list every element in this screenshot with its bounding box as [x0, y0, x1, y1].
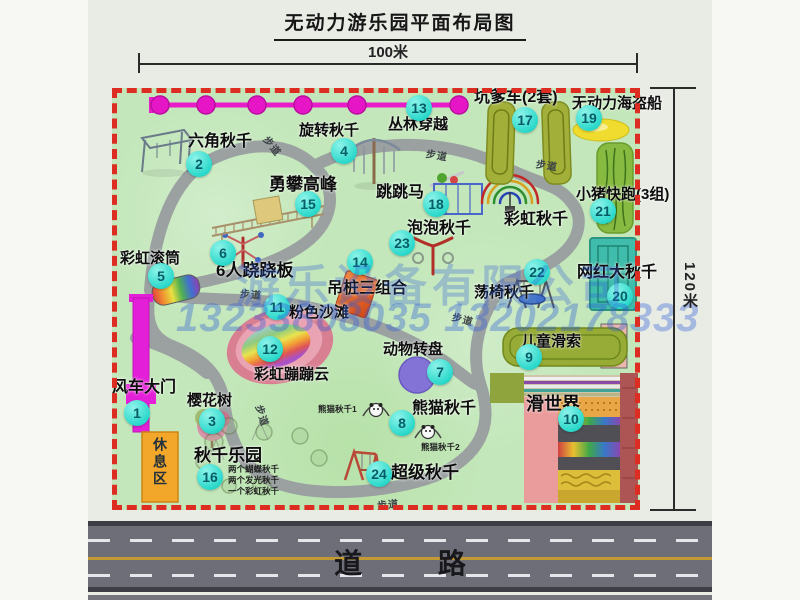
label-piggy-run: 小猪快跑(3组)	[576, 187, 669, 203]
label-rainbow-swing: 彩虹秋千	[504, 212, 568, 229]
label-rest-area: 休息区	[150, 437, 170, 488]
label-rotating-swing: 旋转秋千	[299, 123, 359, 139]
title-wrap: 无动力游乐园平面布局图	[0, 8, 800, 41]
badge-13: 13	[406, 95, 432, 121]
label-bubble-swing: 泡泡秋千	[407, 221, 471, 238]
road-base-edge	[88, 595, 712, 600]
label-bumper-car: 坑爹车(2套)	[474, 90, 558, 107]
label-hexagon-swing: 六角秋千	[188, 134, 252, 151]
hexagon-swing-icon	[142, 130, 192, 177]
slide-world-icon	[490, 373, 638, 503]
label-pink-beach: 粉色沙滩	[289, 305, 349, 321]
badge-19: 19	[576, 105, 602, 131]
swing-park-note-3: 一个彩虹秋千	[228, 486, 279, 497]
dimension-height-line	[673, 88, 675, 510]
page-title: 无动力游乐园平面布局图	[274, 8, 525, 41]
dimension-height-label: 120米	[679, 262, 700, 310]
label-jumping-horse: 跳跳马	[376, 185, 424, 202]
badge-1: 1	[124, 400, 150, 426]
label-panda-swing-2: 熊猫秋千2	[421, 442, 460, 453]
road-label: 道 路	[88, 542, 712, 582]
badge-5: 5	[148, 263, 174, 289]
bubble-swing-icon	[413, 238, 453, 274]
screenshot-stage: 无动力游乐园平面布局图 100米 120米	[0, 0, 800, 600]
dimension-width-line	[138, 63, 638, 65]
label-animal-turntable: 动物转盘	[383, 342, 443, 358]
road: 道 路	[88, 521, 712, 592]
badge-18: 18	[423, 191, 449, 217]
swing-park-note-2: 两个发光秋千	[228, 475, 279, 486]
footpath-label-4: 步道	[239, 285, 262, 302]
dimension-width-label: 100米	[138, 41, 638, 62]
label-rainbow-roller: 彩虹滚筒	[120, 251, 180, 267]
badge-6: 6	[210, 240, 236, 266]
badge-8: 8	[389, 410, 415, 436]
map-graphics	[112, 88, 640, 510]
label-rainbow-cloud: 彩虹蹦蹦云	[254, 367, 329, 383]
label-panda-swing-1: 熊猫秋千1	[318, 404, 357, 415]
badge-20: 20	[607, 283, 633, 309]
dimension-height-tick-bottom	[650, 509, 696, 511]
badge-10: 10	[558, 406, 584, 432]
rotating-swing-icon	[350, 138, 400, 190]
dimension-width-tick-right	[636, 53, 638, 73]
walking-paths	[136, 145, 579, 492]
badge-16: 16	[197, 464, 223, 490]
badge-7: 7	[427, 359, 453, 385]
badge-11: 11	[264, 294, 290, 320]
badge-17: 17	[512, 107, 538, 133]
label-hanging-piles: 吊桩三组合	[327, 281, 407, 298]
badge-23: 23	[389, 230, 415, 256]
swing-park-notes: 两个蝴蝶秋千 两个发光秋千 一个彩虹秋千	[228, 464, 279, 497]
badge-22: 22	[524, 259, 550, 285]
label-cherry-tree: 樱花树	[187, 393, 232, 409]
badge-24: 24	[366, 461, 392, 487]
label-swing-park: 秋千乐园	[194, 447, 262, 465]
footpath-label-3: 步道	[535, 156, 559, 174]
swing-park-note-1: 两个蝴蝶秋千	[228, 464, 279, 475]
dimension-width-tick-left	[138, 53, 140, 73]
badge-21: 21	[590, 198, 616, 224]
badge-9: 9	[516, 344, 542, 370]
badge-2: 2	[186, 151, 212, 177]
label-windmill-gate: 风车大门	[112, 380, 176, 397]
label-swing-chair: 荡椅秋千	[474, 285, 534, 301]
footpath-label-6: 步道	[376, 495, 399, 512]
label-super-swing: 超级秋千	[391, 464, 459, 482]
label-big-net-swing: 网红大秋千	[577, 265, 657, 282]
badge-14: 14	[347, 249, 373, 275]
badge-15: 15	[295, 191, 321, 217]
dimension-height-tick-top	[650, 87, 696, 89]
badge-12: 12	[257, 336, 283, 362]
badge-4: 4	[331, 138, 357, 164]
badge-3: 3	[199, 408, 225, 434]
label-panda-swing: 熊猫秋千	[412, 401, 476, 418]
park-map: 1 2 3 4 5 6 7 8 9 10 11 12 13 14 15 16 1…	[112, 88, 640, 510]
